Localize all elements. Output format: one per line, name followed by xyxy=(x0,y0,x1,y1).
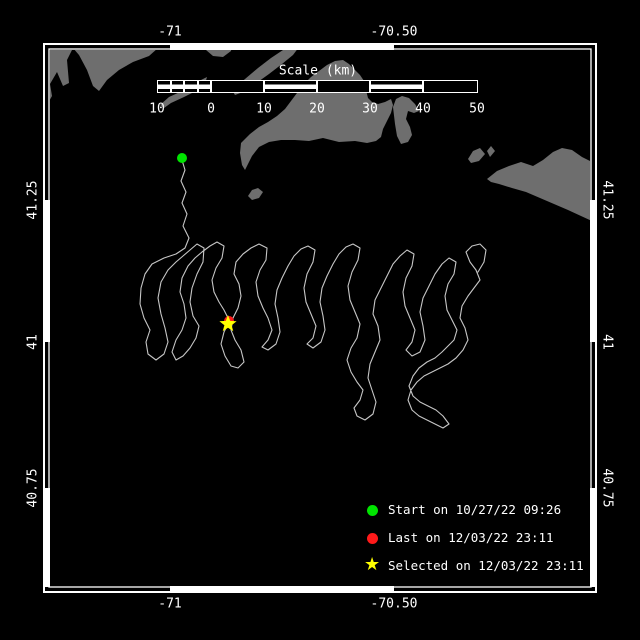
land-polygon-tuckernuck-island xyxy=(468,148,485,163)
scale-bar-cell-0 xyxy=(157,80,171,93)
lon-label-bottom-0: -71 xyxy=(158,597,181,612)
neatline-band-top xyxy=(170,44,394,50)
lat-label-left-2: 40.75 xyxy=(26,468,41,507)
scale-bar-tick-label-4: 30 xyxy=(362,102,378,117)
legend-item-last: Last on 12/03/22 23:11 xyxy=(367,530,554,545)
neatline-band-right-1 xyxy=(590,488,596,587)
selected-point-marker[interactable] xyxy=(219,315,236,331)
scale-bar-tick-label-2: 10 xyxy=(256,102,272,117)
scale-bar-cell-5 xyxy=(264,80,317,93)
legend-item-start: Start on 10/27/22 09:26 xyxy=(367,502,561,517)
legend-label-selected: Selected on 12/03/22 23:11 xyxy=(388,558,584,573)
scale-bar-title: Scale (km) xyxy=(279,64,357,79)
lat-label-left-1: 41 xyxy=(26,334,41,350)
scale-bar-tick-label-0: 10 xyxy=(149,102,165,117)
neatline-band-left-1 xyxy=(44,488,50,587)
legend-label-last: Last on 12/03/22 23:11 xyxy=(388,530,554,545)
scale-bar-cell-3 xyxy=(198,80,212,93)
land-polygon-mainland-northwest xyxy=(44,44,160,110)
land-polygon-muskeget-island xyxy=(487,146,495,157)
start-point-marker[interactable] xyxy=(177,153,187,163)
land-polygon-nomans-land-island xyxy=(248,188,263,200)
gps-track-path[interactable] xyxy=(140,160,486,428)
scale-bar-cell-4 xyxy=(211,80,264,93)
lat-label-right-2: 40.75 xyxy=(600,468,615,507)
scale-bar-cell-6 xyxy=(317,80,370,93)
lon-label-bottom-1: -70.50 xyxy=(371,597,418,612)
scale-bar-cell-8 xyxy=(423,80,478,93)
scale-bar-tick-label-6: 50 xyxy=(469,102,485,117)
scale-bar-cell-1 xyxy=(171,80,185,93)
scale-bar-tick-label-5: 40 xyxy=(415,102,431,117)
lat-label-left-0: 41.25 xyxy=(26,180,41,219)
scale-bar-tick-label-1: 0 xyxy=(207,102,215,117)
tracking-map: Scale (km) 1001020304050 Start on 10/27/… xyxy=(0,0,640,640)
lon-label-top-1: -70.50 xyxy=(371,25,418,40)
legend-label-start: Start on 10/27/22 09:26 xyxy=(388,502,561,517)
lat-label-right-1: 41 xyxy=(600,334,615,350)
start-dot-icon xyxy=(367,505,378,516)
scale-bar-cell-7 xyxy=(370,80,423,93)
scale-bar-cell-2 xyxy=(184,80,198,93)
neatline-band-bottom xyxy=(170,586,394,592)
neatline-band-left-0 xyxy=(44,200,50,342)
land-polygon-nantucket xyxy=(487,148,592,221)
last-dot-icon xyxy=(367,533,378,544)
neatline-band-right-0 xyxy=(590,200,596,342)
selected-star-icon: ★ xyxy=(364,559,380,571)
legend-item-selected: ★ Selected on 12/03/22 23:11 xyxy=(367,558,584,573)
lon-label-top-0: -71 xyxy=(158,25,181,40)
lat-label-right-0: 41.25 xyxy=(600,180,615,219)
scale-bar-tick-label-3: 20 xyxy=(309,102,325,117)
